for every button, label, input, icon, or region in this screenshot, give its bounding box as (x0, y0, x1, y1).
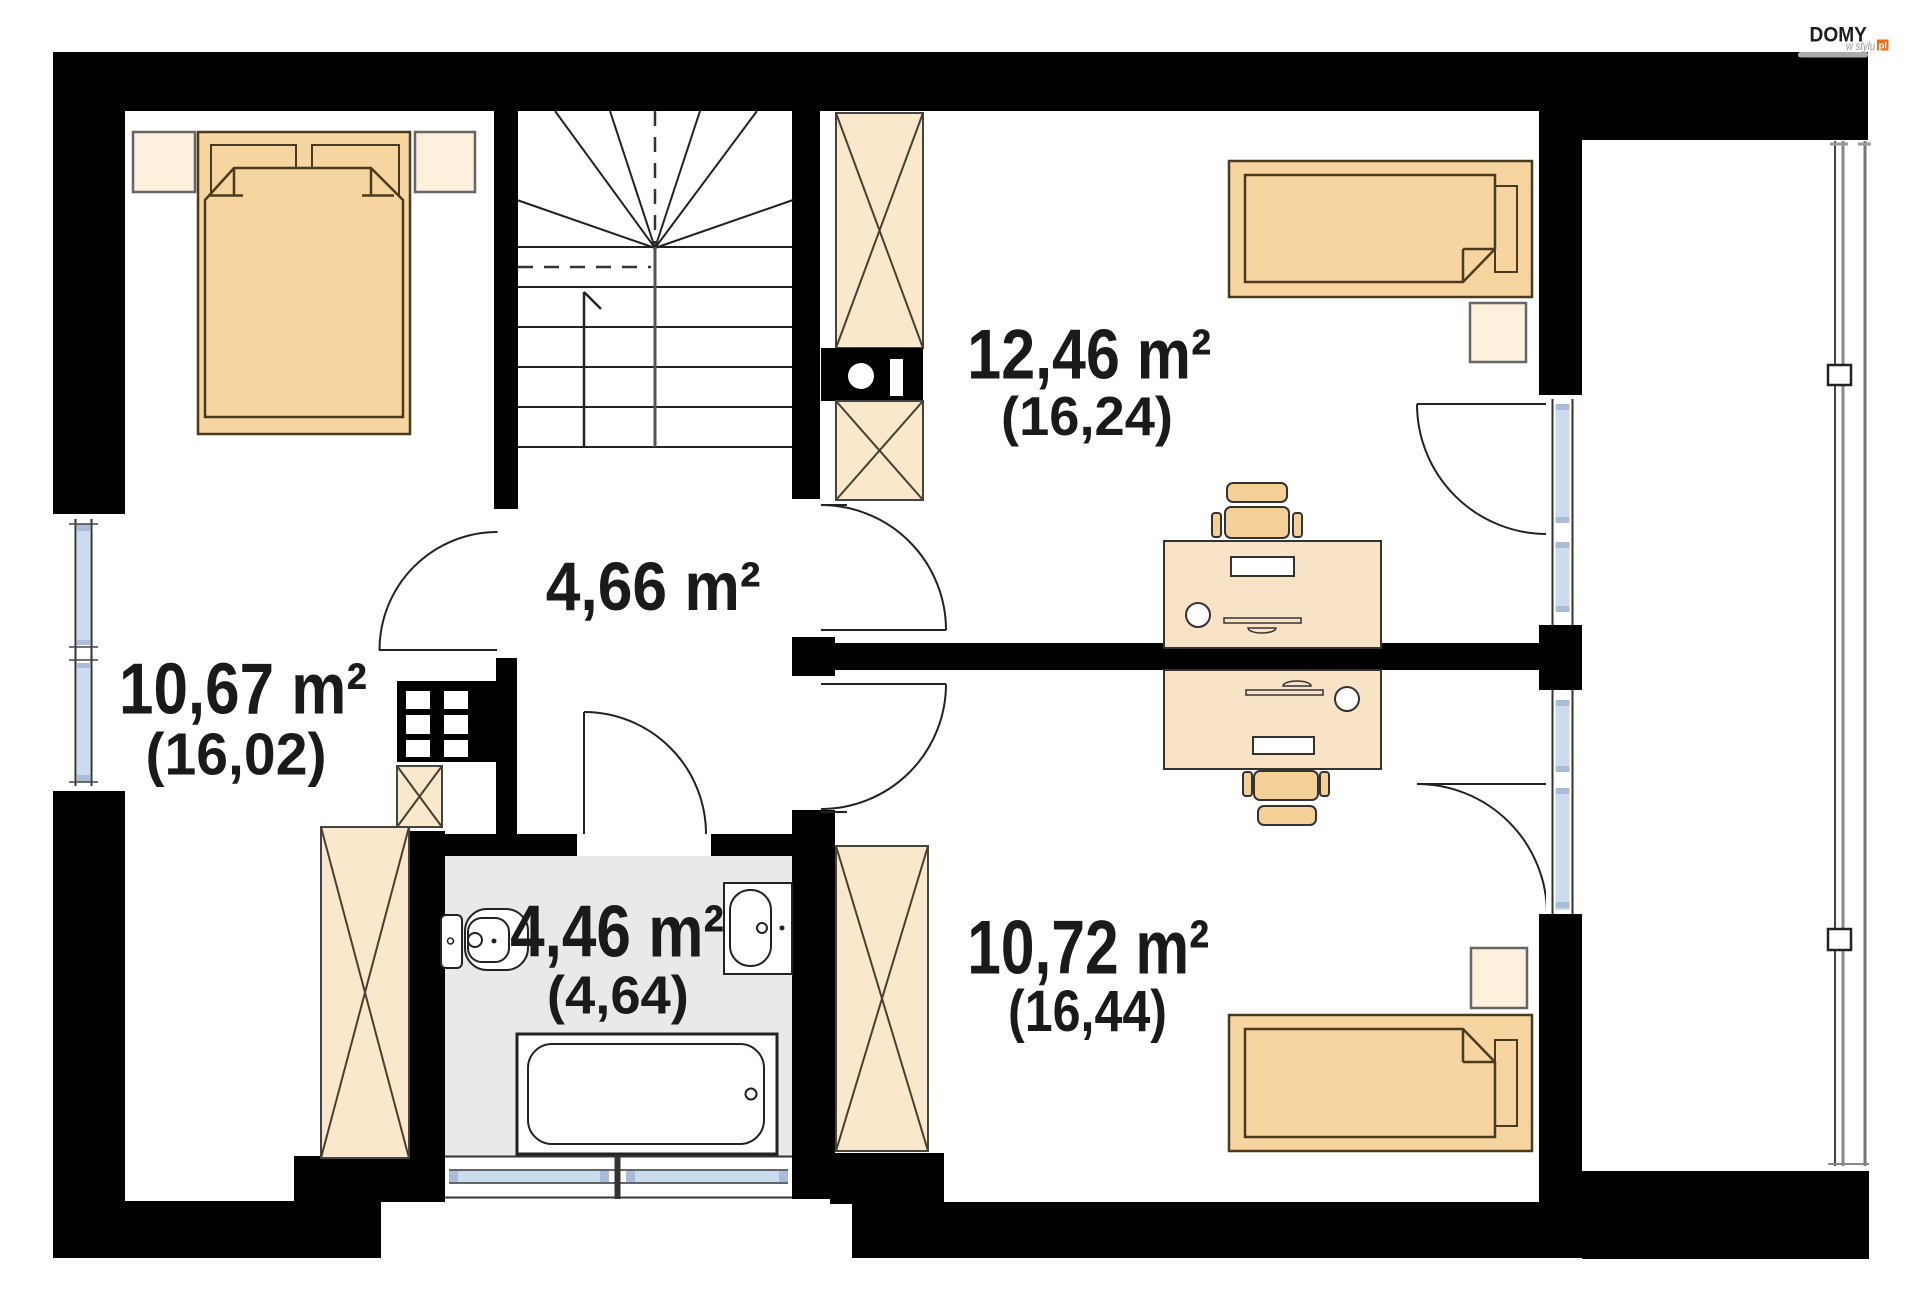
svg-text:(4,64): (4,64) (547, 965, 689, 1025)
svg-text:10,67 m²: 10,67 m² (119, 649, 367, 730)
svg-text:(16,44): (16,44) (1008, 979, 1167, 1044)
svg-text:10,72 m²: 10,72 m² (967, 906, 1209, 991)
svg-text:pl: pl (1878, 41, 1886, 52)
svg-text:4,46 m²: 4,46 m² (510, 889, 724, 972)
svg-text:(16,02): (16,02) (146, 720, 327, 787)
svg-text:12,46 m²: 12,46 m² (967, 314, 1211, 393)
svg-text:(16,24): (16,24) (1001, 386, 1173, 447)
svg-text:4,66 m²: 4,66 m² (546, 548, 761, 625)
svg-text:w stylu: w stylu (1846, 39, 1875, 53)
